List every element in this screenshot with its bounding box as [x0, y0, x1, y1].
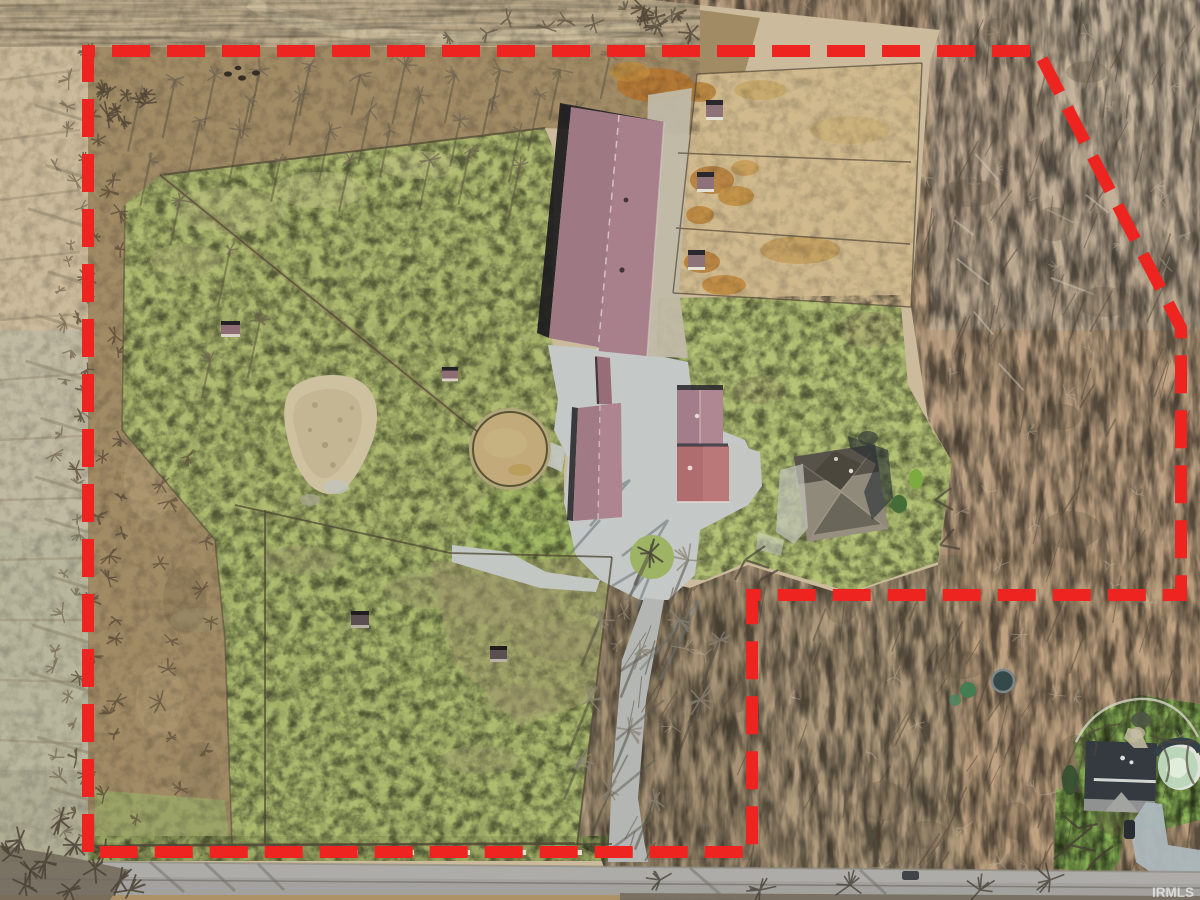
svg-text:IRMLS: IRMLS — [1152, 885, 1194, 900]
